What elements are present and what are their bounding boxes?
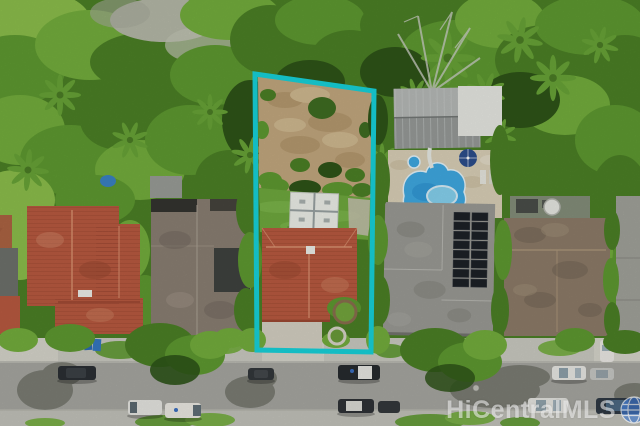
watermark-text: HiCentralMLS: [446, 396, 616, 425]
photo-grain: [0, 0, 640, 426]
globe-icon: [619, 395, 640, 425]
watermark: HiCentralMLS: [446, 395, 640, 425]
aerial-photo: HiCentralMLS: [0, 0, 640, 426]
aerial-scene: [0, 0, 640, 426]
